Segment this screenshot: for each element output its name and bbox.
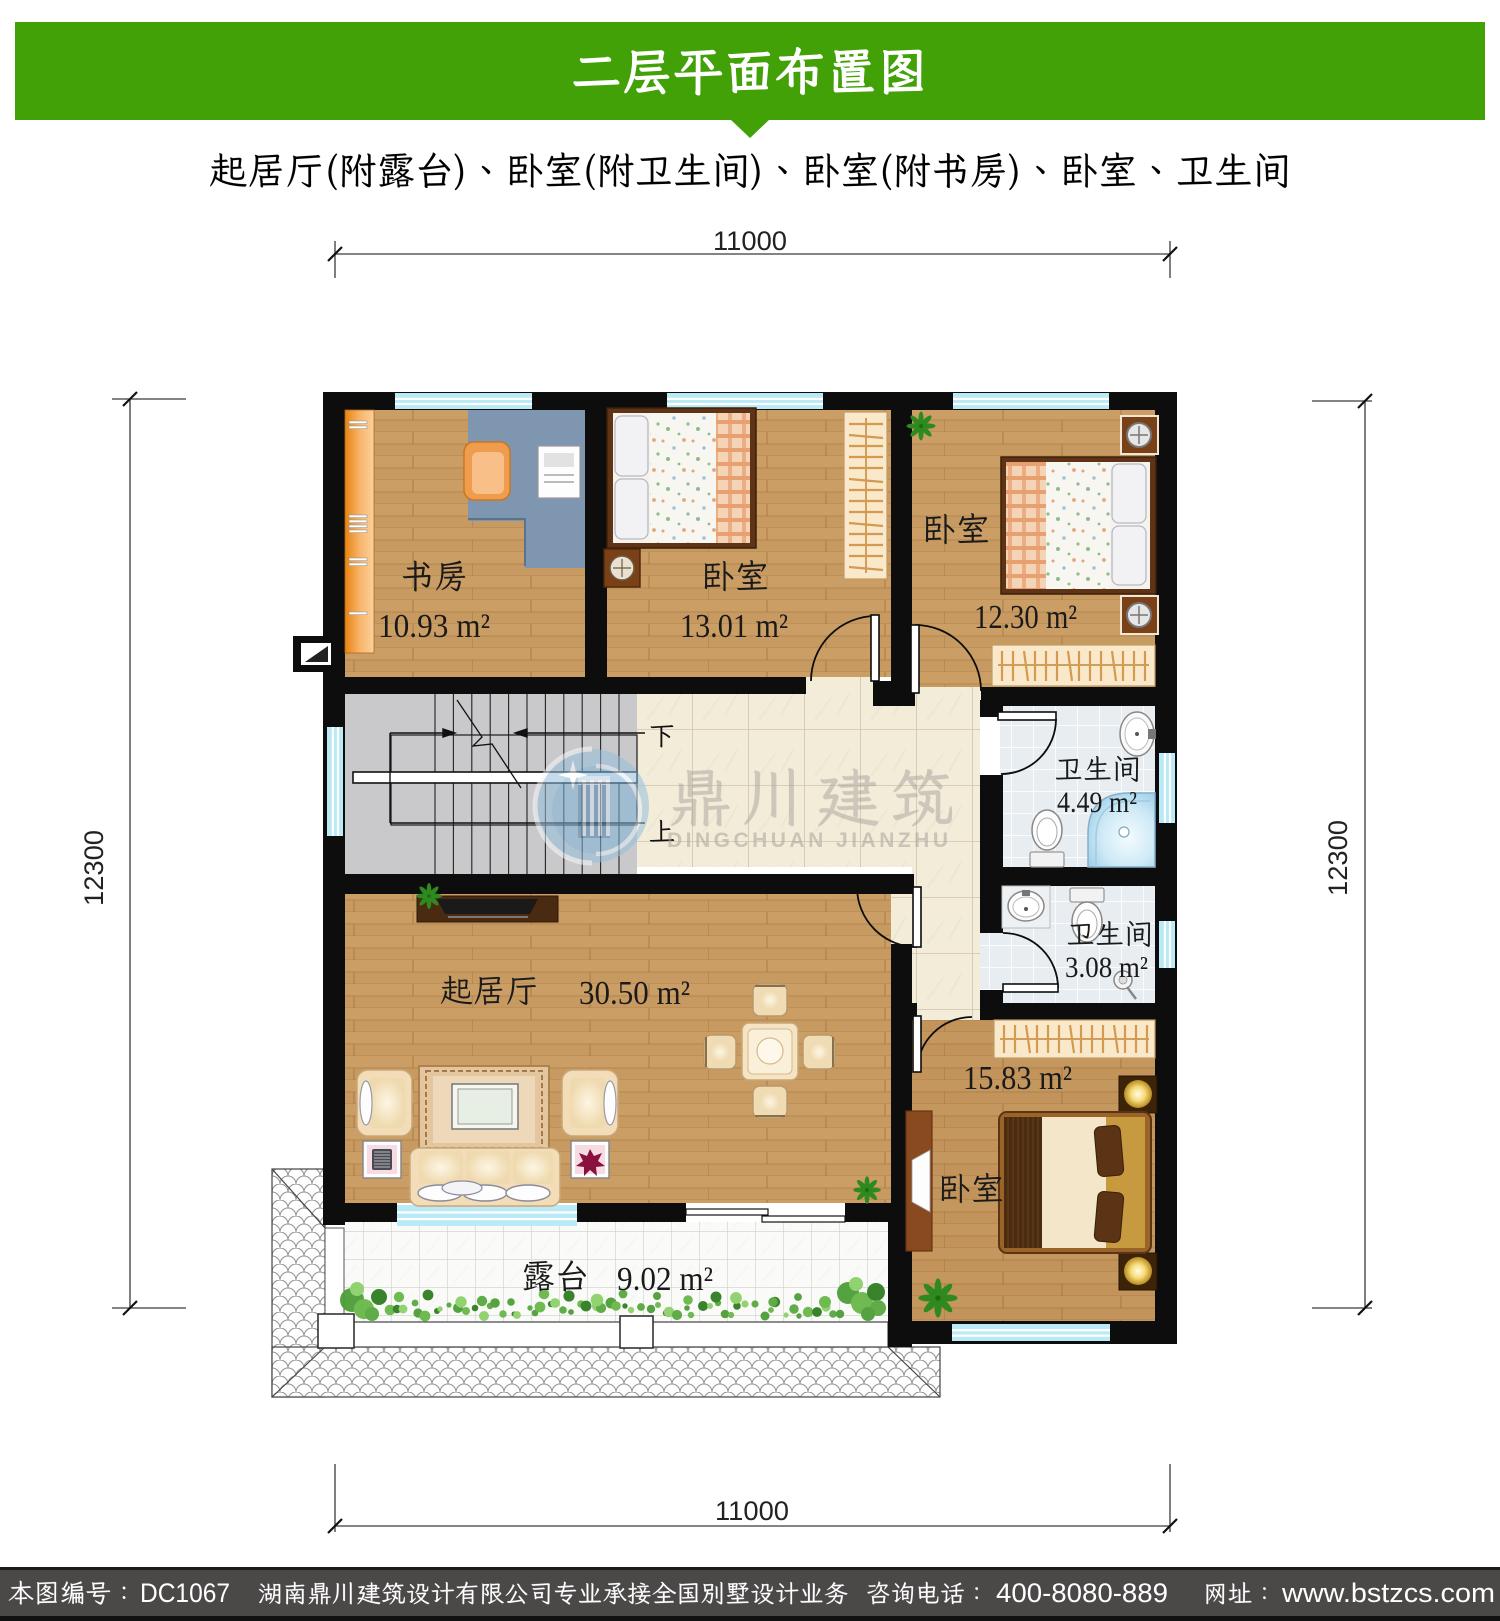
svg-text:3.08 m²: 3.08 m² (1065, 951, 1148, 984)
svg-text:15.83 m²: 15.83 m² (963, 1060, 1072, 1097)
svg-text:www.bstzcs.com: www.bstzcs.com (1281, 1578, 1495, 1608)
svg-text:13.01 m²: 13.01 m² (680, 608, 788, 645)
svg-text:400-8080-889: 400-8080-889 (996, 1578, 1168, 1608)
svg-text:12300: 12300 (1323, 820, 1353, 896)
svg-text:12.30 m²: 12.30 m² (974, 599, 1077, 636)
svg-text:30.50 m²: 30.50 m² (579, 975, 690, 1012)
svg-text:12300: 12300 (79, 830, 109, 906)
svg-text:10.93 m²: 10.93 m² (378, 608, 490, 645)
svg-text:DC1067: DC1067 (140, 1578, 230, 1608)
svg-text:11000: 11000 (715, 1496, 789, 1526)
svg-text:9.02 m²: 9.02 m² (617, 1261, 713, 1298)
svg-text:11000: 11000 (713, 226, 787, 256)
svg-text:DINGCHUAN JIANZHU: DINGCHUAN JIANZHU (667, 829, 948, 852)
svg-text:4.49 m²: 4.49 m² (1057, 786, 1137, 819)
